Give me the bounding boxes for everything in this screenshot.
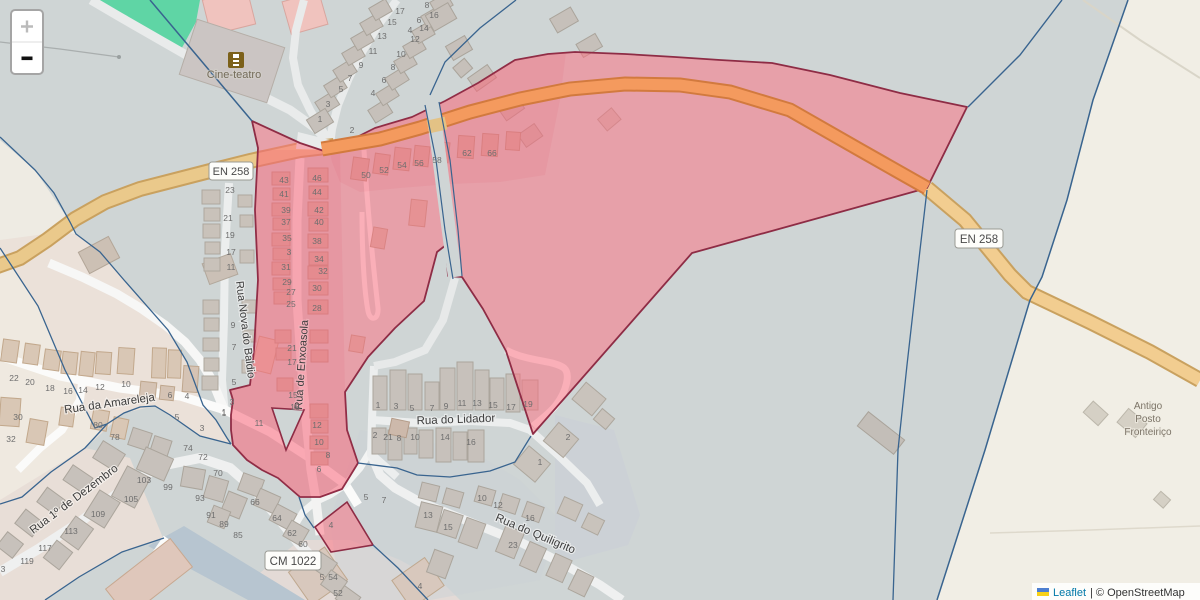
svg-text:34: 34 xyxy=(314,254,324,264)
svg-text:7: 7 xyxy=(232,342,237,352)
svg-text:74: 74 xyxy=(183,443,193,453)
svg-text:6: 6 xyxy=(317,464,322,474)
svg-text:29: 29 xyxy=(282,277,292,287)
svg-text:5: 5 xyxy=(410,403,415,413)
svg-text:5: 5 xyxy=(364,492,369,502)
svg-text:23: 23 xyxy=(225,185,235,195)
svg-text:17: 17 xyxy=(506,402,516,412)
svg-text:12: 12 xyxy=(95,382,105,392)
svg-text:31: 31 xyxy=(281,262,291,272)
svg-text:15: 15 xyxy=(488,400,498,410)
svg-text:109: 109 xyxy=(91,509,105,519)
svg-text:62: 62 xyxy=(462,148,472,158)
svg-text:7: 7 xyxy=(348,73,353,83)
svg-text:11: 11 xyxy=(458,398,467,408)
svg-text:2: 2 xyxy=(373,430,378,440)
svg-text:Antigo: Antigo xyxy=(1134,401,1163,412)
svg-text:21: 21 xyxy=(383,432,393,442)
svg-text:Posto: Posto xyxy=(1135,414,1161,425)
svg-text:28: 28 xyxy=(312,303,322,313)
svg-text:37: 37 xyxy=(281,217,291,227)
svg-text:2: 2 xyxy=(566,432,571,442)
svg-text:42: 42 xyxy=(314,205,324,215)
svg-text:1: 1 xyxy=(222,407,227,417)
svg-text:1: 1 xyxy=(318,114,323,124)
svg-text:35: 35 xyxy=(282,233,292,243)
svg-text:Fronteiriço: Fronteiriço xyxy=(1124,427,1172,438)
svg-text:13: 13 xyxy=(423,510,433,520)
svg-text:11: 11 xyxy=(255,418,264,428)
svg-text:117: 117 xyxy=(38,543,52,553)
svg-text:3: 3 xyxy=(394,401,399,411)
svg-text:62: 62 xyxy=(287,528,297,538)
svg-text:18: 18 xyxy=(45,383,55,393)
svg-text:23: 23 xyxy=(508,540,518,550)
svg-text:14: 14 xyxy=(440,432,450,442)
svg-text:15: 15 xyxy=(443,522,453,532)
svg-text:4: 4 xyxy=(418,581,423,591)
svg-text:30: 30 xyxy=(312,283,322,293)
svg-text:2: 2 xyxy=(350,125,355,135)
svg-text:103: 103 xyxy=(137,475,151,485)
svg-text:17: 17 xyxy=(226,247,236,257)
svg-text:EN 258: EN 258 xyxy=(960,234,998,246)
svg-text:Leaflet: Leaflet xyxy=(1053,587,1086,599)
svg-text:19: 19 xyxy=(225,230,235,240)
svg-text:89: 89 xyxy=(219,519,229,529)
svg-text:10: 10 xyxy=(121,379,131,389)
svg-text:43: 43 xyxy=(279,175,289,185)
svg-text:80: 80 xyxy=(93,420,103,430)
svg-text:7: 7 xyxy=(430,403,435,413)
svg-text:16: 16 xyxy=(466,437,476,447)
svg-text:6: 6 xyxy=(382,75,387,85)
svg-text:9: 9 xyxy=(231,320,236,330)
svg-text:| © OpenStreetMap: | © OpenStreetMap xyxy=(1090,587,1185,599)
svg-text:99: 99 xyxy=(163,482,173,492)
svg-text:14: 14 xyxy=(78,385,88,395)
svg-text:52: 52 xyxy=(379,165,389,175)
svg-text:16: 16 xyxy=(63,386,73,396)
svg-text:20: 20 xyxy=(25,377,35,387)
svg-text:8: 8 xyxy=(326,450,331,460)
svg-text:3: 3 xyxy=(1,564,6,574)
svg-text:6: 6 xyxy=(417,15,422,25)
svg-text:40: 40 xyxy=(314,217,324,227)
svg-text:3: 3 xyxy=(326,99,331,109)
svg-text:6: 6 xyxy=(168,390,173,400)
svg-text:13: 13 xyxy=(377,31,387,41)
svg-text:30: 30 xyxy=(13,412,23,422)
svg-text:93: 93 xyxy=(195,493,205,503)
svg-text:5: 5 xyxy=(339,84,344,94)
svg-text:12: 12 xyxy=(410,34,420,44)
svg-text:4: 4 xyxy=(371,88,376,98)
svg-text:85: 85 xyxy=(233,530,243,540)
svg-text:46: 46 xyxy=(312,173,322,183)
svg-text:21: 21 xyxy=(287,343,297,353)
svg-text:3: 3 xyxy=(200,423,205,433)
svg-text:16: 16 xyxy=(429,10,439,20)
svg-text:11: 11 xyxy=(369,46,378,56)
svg-text:70: 70 xyxy=(213,468,223,478)
svg-text:5: 5 xyxy=(232,377,237,387)
svg-text:4: 4 xyxy=(408,25,413,35)
svg-text:22: 22 xyxy=(9,373,19,383)
svg-text:91: 91 xyxy=(206,510,216,520)
svg-text:10: 10 xyxy=(314,437,324,447)
svg-text:60: 60 xyxy=(298,539,308,549)
svg-text:Cine-teatro: Cine-teatro xyxy=(207,69,261,81)
svg-text:15: 15 xyxy=(387,17,397,27)
svg-text:7: 7 xyxy=(382,495,387,505)
svg-text:3: 3 xyxy=(287,247,292,257)
svg-text:EN 258: EN 258 xyxy=(213,166,250,178)
svg-text:4: 4 xyxy=(185,391,190,401)
svg-text:64: 64 xyxy=(272,513,282,523)
svg-text:58: 58 xyxy=(432,155,442,165)
svg-text:12: 12 xyxy=(312,420,322,430)
svg-text:27: 27 xyxy=(286,287,296,297)
svg-text:54: 54 xyxy=(397,160,407,170)
svg-text:1: 1 xyxy=(538,457,543,467)
svg-text:11: 11 xyxy=(227,262,236,272)
svg-text:72: 72 xyxy=(198,452,208,462)
svg-text:32: 32 xyxy=(318,266,328,276)
svg-text:1: 1 xyxy=(376,400,381,410)
svg-text:41: 41 xyxy=(279,189,289,199)
svg-text:113: 113 xyxy=(64,526,78,536)
svg-text:50: 50 xyxy=(361,170,371,180)
svg-text:9: 9 xyxy=(444,401,449,411)
svg-text:9: 9 xyxy=(359,60,364,70)
svg-text:10: 10 xyxy=(410,432,420,442)
svg-text:52: 52 xyxy=(333,588,343,598)
svg-text:4: 4 xyxy=(329,520,334,530)
svg-text:56: 56 xyxy=(414,158,424,168)
svg-text:16: 16 xyxy=(290,402,300,412)
svg-text:19: 19 xyxy=(523,399,533,409)
svg-text:38: 38 xyxy=(312,236,322,246)
svg-text:17: 17 xyxy=(395,6,405,16)
svg-text:119: 119 xyxy=(20,556,34,566)
svg-text:54: 54 xyxy=(328,572,338,582)
svg-text:10: 10 xyxy=(396,49,406,59)
svg-text:105: 105 xyxy=(124,494,138,504)
svg-text:21: 21 xyxy=(223,213,233,223)
svg-text:66: 66 xyxy=(487,148,497,158)
svg-text:8: 8 xyxy=(391,62,396,72)
svg-text:8: 8 xyxy=(397,433,402,443)
svg-text:15: 15 xyxy=(288,390,298,400)
svg-text:25: 25 xyxy=(286,299,296,309)
svg-text:3: 3 xyxy=(230,397,235,407)
svg-text:17: 17 xyxy=(287,357,297,367)
svg-text:44: 44 xyxy=(312,187,322,197)
svg-text:78: 78 xyxy=(110,432,120,442)
svg-text:12: 12 xyxy=(493,500,503,510)
svg-text:13: 13 xyxy=(472,398,482,408)
svg-text:10: 10 xyxy=(477,493,487,503)
svg-text:16: 16 xyxy=(525,513,535,523)
svg-text:39: 39 xyxy=(281,205,291,215)
svg-text:5: 5 xyxy=(175,412,180,422)
svg-text:8: 8 xyxy=(425,0,430,10)
svg-text:5: 5 xyxy=(320,572,325,582)
svg-text:66: 66 xyxy=(250,497,260,507)
svg-text:32: 32 xyxy=(6,434,16,444)
svg-text:CM 1022: CM 1022 xyxy=(270,556,317,568)
